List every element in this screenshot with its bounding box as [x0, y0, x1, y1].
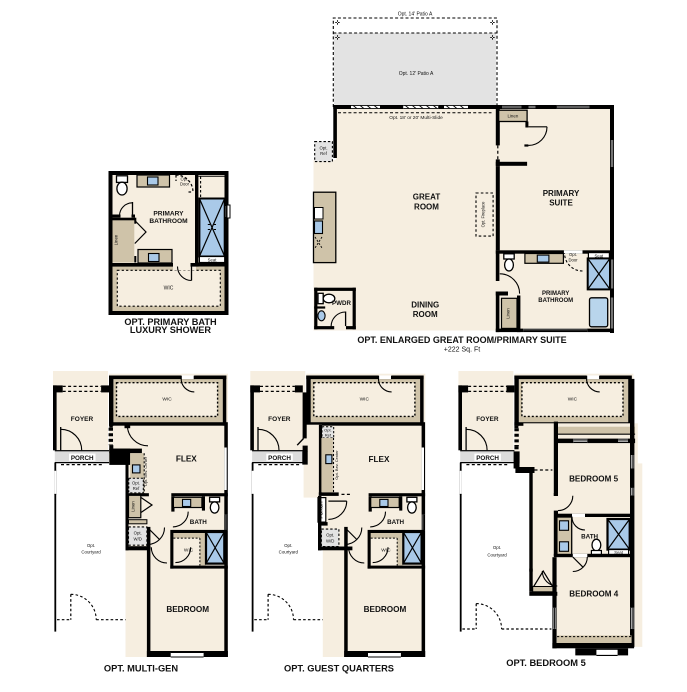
- svg-text:Opt.: Opt.: [87, 543, 95, 548]
- svg-text:BATH: BATH: [190, 519, 207, 526]
- svg-text:BEDROOM: BEDROOM: [166, 605, 209, 614]
- svg-text:Door: Door: [180, 182, 190, 187]
- svg-text:WIC: WIC: [164, 286, 174, 292]
- svg-text:LUXURY SHOWER: LUXURY SHOWER: [130, 325, 212, 335]
- svg-text:Door: Door: [568, 258, 578, 263]
- svg-text:Opt.: Opt.: [326, 533, 334, 538]
- svg-text:Courtyard: Courtyard: [279, 550, 299, 555]
- svg-text:Opt. Bev. Center: Opt. Bev. Center: [143, 456, 148, 486]
- svg-text:WIC: WIC: [381, 548, 391, 554]
- svg-text:BATH: BATH: [581, 534, 598, 541]
- svg-text:Opt.: Opt.: [319, 146, 327, 151]
- svg-text:Linen: Linen: [508, 114, 519, 119]
- svg-text:Opt.: Opt.: [284, 543, 292, 548]
- svg-text:FLEX: FLEX: [369, 455, 390, 464]
- svg-text:Opt.: Opt.: [569, 252, 577, 257]
- svg-text:WIC: WIC: [360, 397, 370, 403]
- svg-text:WIC: WIC: [162, 397, 172, 403]
- svg-text:FOYER: FOYER: [268, 416, 291, 423]
- svg-text:Opt. 18' or 20' Multi-Slide: Opt. 18' or 20' Multi-Slide: [389, 115, 443, 121]
- svg-text:BATHROOM: BATHROOM: [149, 218, 188, 225]
- svg-text:Linen: Linen: [114, 234, 119, 245]
- svg-text:FOYER: FOYER: [476, 416, 499, 423]
- svg-text:Courtyard: Courtyard: [487, 553, 507, 558]
- svg-text:Opt.: Opt.: [132, 480, 140, 485]
- svg-text:Seat: Seat: [208, 257, 218, 262]
- svg-text:FOYER: FOYER: [71, 416, 94, 423]
- svg-text:PORCH: PORCH: [268, 455, 291, 462]
- svg-text:Ref: Ref: [133, 486, 140, 491]
- svg-text:GREAT: GREAT: [413, 193, 441, 202]
- svg-text:W/D: W/D: [326, 539, 334, 544]
- svg-text:Opt. 12' Patio A: Opt. 12' Patio A: [399, 71, 434, 77]
- svg-text:BEDROOM: BEDROOM: [364, 605, 407, 614]
- svg-text:Ref: Ref: [325, 432, 332, 437]
- svg-text:WIC: WIC: [184, 548, 194, 554]
- svg-text:Ref: Ref: [320, 151, 327, 156]
- svg-text:OPT. ENLARGED GREAT ROOM/PRIMA: OPT. ENLARGED GREAT ROOM/PRIMARY SUITE: [357, 335, 566, 345]
- svg-text:Opt.: Opt.: [134, 531, 142, 536]
- svg-text:FLEX: FLEX: [176, 455, 197, 464]
- svg-text:BATHROOM: BATHROOM: [538, 298, 573, 304]
- svg-text:Linen: Linen: [505, 308, 510, 319]
- svg-text:ROOM: ROOM: [414, 203, 439, 212]
- svg-text:Opt. 14' Patio A: Opt. 14' Patio A: [398, 12, 433, 18]
- svg-text:PORCH: PORCH: [71, 455, 94, 462]
- svg-text:SUITE: SUITE: [549, 199, 573, 208]
- svg-text:OPT. BEDROOM 5: OPT. BEDROOM 5: [506, 658, 586, 668]
- svg-text:PRIMARY: PRIMARY: [542, 291, 569, 297]
- svg-text:OPT. MULTI-GEN: OPT. MULTI-GEN: [104, 664, 178, 674]
- svg-text:PORCH: PORCH: [476, 455, 499, 462]
- svg-text:Linen: Linen: [130, 501, 135, 512]
- svg-text:Opt.: Opt.: [493, 545, 501, 550]
- svg-text:+222 Sq. Ft: +222 Sq. Ft: [444, 347, 480, 354]
- svg-text:BEDROOM 5: BEDROOM 5: [569, 475, 619, 484]
- svg-text:W/D: W/D: [134, 537, 142, 542]
- svg-text:BATH: BATH: [387, 519, 404, 526]
- svg-text:PRIMARY: PRIMARY: [153, 211, 184, 218]
- svg-text:BEDROOM 4: BEDROOM 4: [569, 590, 619, 599]
- svg-text:WIC: WIC: [568, 397, 578, 403]
- svg-text:DINING: DINING: [411, 301, 439, 310]
- svg-text:Opt. Fireplace: Opt. Fireplace: [481, 201, 486, 227]
- svg-text:PRIMARY: PRIMARY: [543, 189, 580, 198]
- svg-text:ROOM: ROOM: [413, 310, 438, 319]
- svg-text:OPT. GUEST QUARTERS: OPT. GUEST QUARTERS: [284, 664, 394, 674]
- svg-text:PWDR: PWDR: [332, 300, 351, 307]
- svg-text:Courtyard: Courtyard: [81, 550, 101, 555]
- svg-text:Opt. Bev. Center: Opt. Bev. Center: [334, 450, 339, 480]
